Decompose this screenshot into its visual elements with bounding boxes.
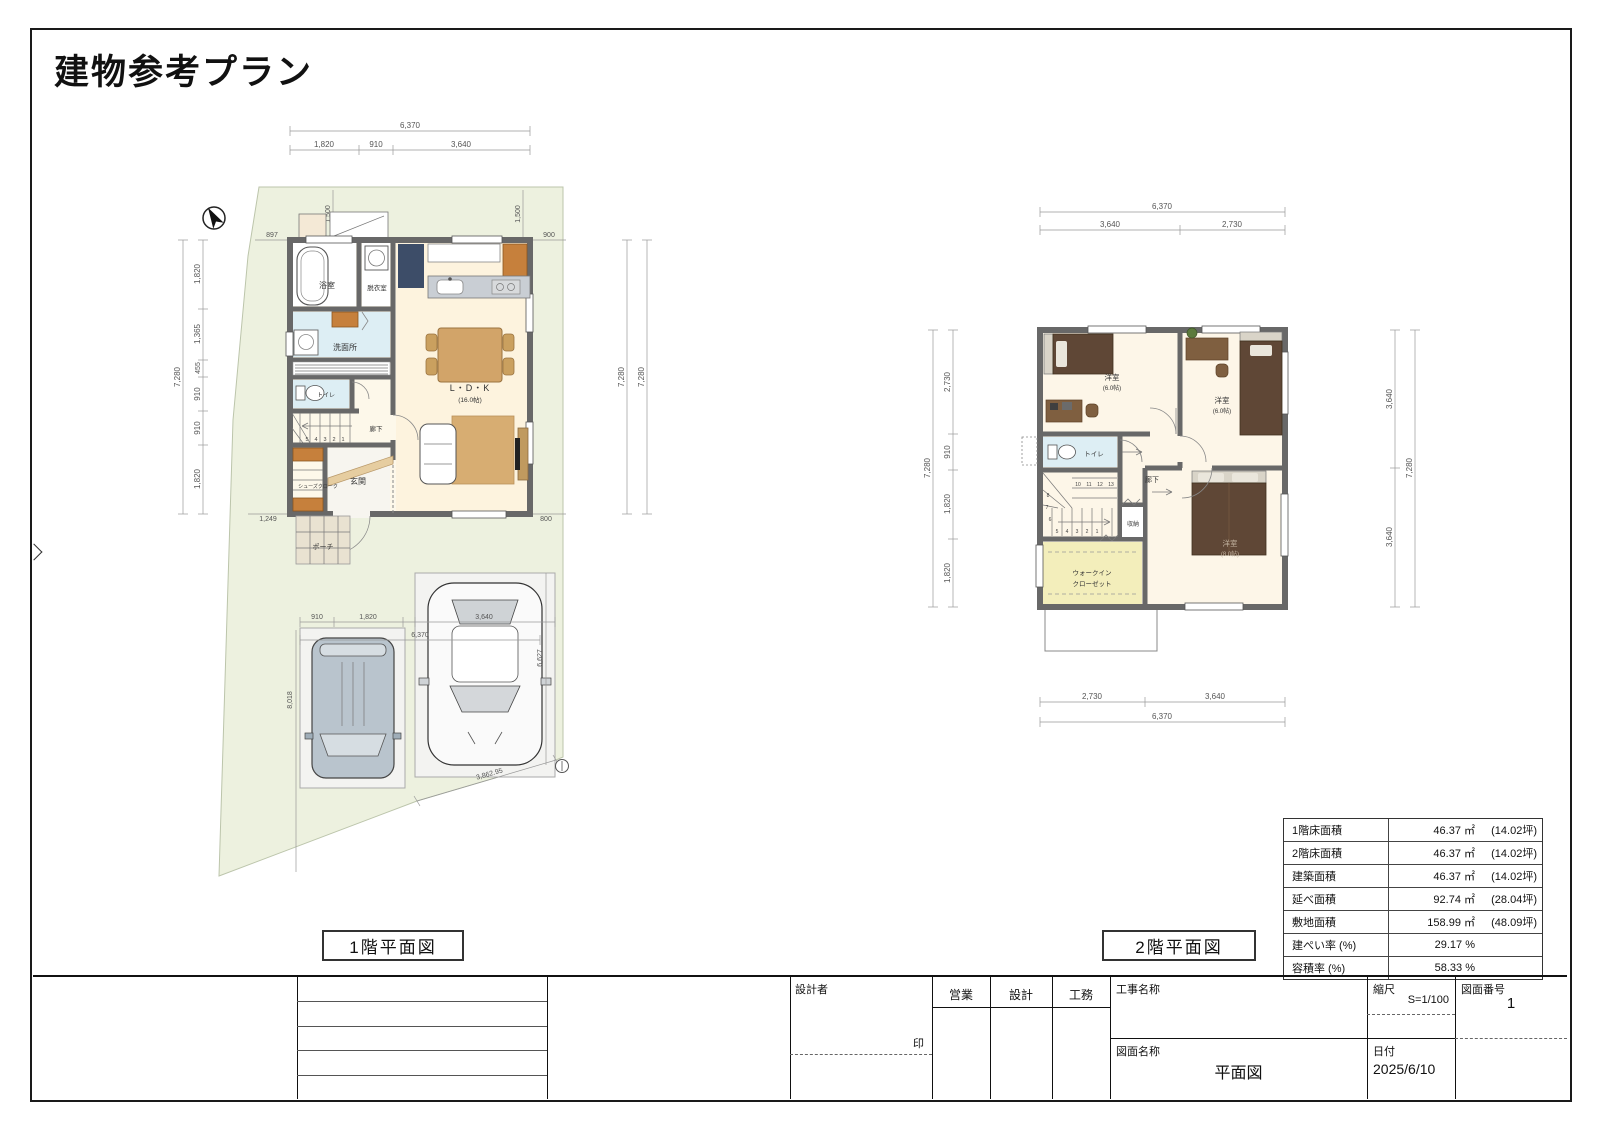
area-label: 敷地面積 — [1284, 911, 1389, 933]
bathtub — [297, 247, 328, 305]
divider — [297, 977, 298, 1099]
stair-number: 2 — [1086, 529, 1089, 535]
area-table: 1階床面積 46.37 ㎡ (14.02坪) 2階床面積 46.37 ㎡ (14… — [1283, 818, 1543, 980]
dim-label: 2,730 — [1222, 220, 1243, 229]
refrigerator — [398, 244, 424, 288]
plan1-dim-left: 7,280 1,820 1,365 455 910 910 1,820 — [173, 240, 208, 514]
area-value: 46.37 ㎡ — [1389, 845, 1475, 861]
dim-label: 800 — [540, 516, 552, 523]
dim-label: 1,820 — [943, 493, 952, 514]
stair-number: 10 — [1075, 482, 1081, 488]
washing-machine — [365, 246, 388, 270]
dim-label: 1,820 — [314, 140, 335, 149]
dim-label: 7,280 — [923, 457, 932, 478]
dim-label: 1,365 — [193, 323, 202, 344]
stair-number: 5 — [1056, 529, 1059, 535]
room-label: ポーチ — [313, 543, 334, 551]
room-label: シューズクローク — [298, 483, 338, 490]
dim-label: 8,018 — [287, 691, 294, 709]
room-label: 浴室 — [319, 280, 335, 290]
room-label: 廊下 — [1145, 475, 1159, 484]
plan2-dim-left: 7,280 2,730 910 1,820 1,820 — [923, 330, 958, 607]
divider — [297, 1001, 547, 1002]
dim-label: 2,730 — [943, 371, 952, 392]
divider — [1367, 1014, 1455, 1015]
plan2-dim-right: 3,640 3,640 7,280 — [1385, 330, 1420, 607]
area-tsubo: (14.02坪) — [1475, 868, 1542, 884]
drawing-name-value: 平面図 — [1110, 1059, 1367, 1083]
area-label: 建ぺい率 (%) — [1284, 934, 1389, 956]
divider — [297, 1026, 547, 1027]
plan1-dim-top: 6,370 1,820 910 3,640 — [290, 121, 530, 155]
plan1-caption: 1階平面図 — [322, 930, 464, 961]
stair-number: 3 — [323, 437, 326, 443]
divider — [932, 1007, 1110, 1008]
sales-label: 営業 — [932, 986, 990, 1003]
dim-label: 910 — [193, 387, 202, 401]
dim-label: 910 — [369, 140, 383, 149]
balcony — [1045, 607, 1157, 651]
stair-number: 7 — [1046, 505, 1049, 511]
room-label: トイレ — [317, 393, 335, 399]
dim-label: 897 — [266, 232, 278, 239]
dim-label: 6,370 — [1152, 202, 1173, 211]
stair-number: 8 — [1047, 493, 1050, 499]
room-label: 廊下 — [370, 424, 384, 433]
plan2-dim-top: 6,370 3,640 2,730 — [1040, 202, 1285, 235]
divider — [1110, 1038, 1455, 1039]
project-name-label: 工事名称 — [1116, 981, 1160, 997]
stair-number: 4 — [1066, 529, 1069, 535]
drawing-name-label: 図面名称 — [1116, 1043, 1160, 1059]
drawing-number-value: 1 — [1455, 995, 1567, 1012]
dim-label: 1,500 — [515, 205, 522, 223]
dim-label: 910 — [943, 445, 952, 459]
divider — [297, 1075, 547, 1076]
dim-label: 3,640 — [1100, 220, 1121, 229]
stair-number: 5 — [305, 437, 308, 443]
room-label: 洋室 — [1105, 372, 1121, 382]
dim-label: 3,640 — [1385, 388, 1394, 409]
dim-label: 1,249 — [259, 516, 277, 523]
dim-label: 6,627 — [537, 649, 544, 667]
designer-label: 設計者 — [795, 981, 828, 997]
dim-label: 6,370 — [400, 121, 421, 130]
plan1-dim-right: 7,280 7,280 — [617, 240, 652, 514]
area-value: 46.37 ㎡ — [1389, 868, 1475, 884]
room-label: L・D・K — [450, 383, 491, 393]
dim-label: 3,640 — [1385, 526, 1394, 547]
dim-label: 900 — [543, 232, 555, 239]
scale-value: S=1/100 — [1373, 994, 1449, 1006]
area-value: 92.74 ㎡ — [1389, 891, 1475, 907]
stair-number: 6 — [1049, 517, 1052, 523]
car — [419, 583, 551, 765]
table-row: 建築面積 46.37 ㎡ (14.02坪) — [1284, 864, 1542, 887]
north-arrow-icon — [203, 205, 225, 229]
dim-label: 3,640 — [475, 614, 493, 621]
area-value: 29.17 % — [1389, 939, 1475, 951]
title-block: 設計者 印 営業 設計 工務 工事名称 図面名称 平面図 縮尺 S=1/100 … — [33, 975, 1567, 1099]
dim-label: 7,280 — [1405, 457, 1414, 478]
stair-number: 11 — [1086, 482, 1091, 488]
living-set — [420, 416, 528, 484]
toilet-fixture-2f — [1048, 445, 1076, 459]
floor2-plan: 6,370 3,640 2,730 7,280 2,730 910 1,820 … — [900, 190, 1440, 735]
room-label: クローゼット — [1073, 579, 1112, 588]
stair-number: 13 — [1108, 482, 1114, 488]
minivan — [305, 638, 401, 778]
room-label: 洋室 — [1215, 395, 1231, 405]
date-value: 2025/6/10 — [1373, 1061, 1435, 1077]
floor2-building: 5 4 3 2 1 10 11 12 13 8 7 6 — [1022, 326, 1288, 651]
divider — [790, 1054, 932, 1055]
area-label: 2階床面積 — [1284, 842, 1389, 864]
area-value: 58.33 % — [1389, 962, 1475, 974]
stair-number: 1 — [341, 437, 344, 443]
area-tsubo: (28.04坪) — [1475, 891, 1542, 907]
area-tsubo: (14.02坪) — [1475, 845, 1542, 861]
stair-number: 3 — [1076, 529, 1079, 535]
room-label: ウォークイン — [1073, 569, 1112, 577]
divider — [297, 1050, 547, 1051]
area-tsubo: (14.02坪) — [1475, 822, 1542, 838]
dim-label: 1,820 — [359, 614, 377, 621]
stair-number: 12 — [1097, 482, 1103, 488]
plan2-dim-bottom: 2,730 3,640 6,370 — [1040, 692, 1285, 727]
room-size-label: (16.0帖) — [458, 395, 481, 404]
dim-label: 1,820 — [193, 263, 202, 284]
area-label: 建築面積 — [1284, 865, 1389, 887]
room-label: 収納 — [1127, 520, 1139, 528]
area-label: 1階床面積 — [1284, 819, 1389, 841]
divider — [547, 977, 548, 1099]
table-row: 1階床面積 46.37 ㎡ (14.02坪) — [1284, 819, 1542, 841]
room-size-label: (6.0帖) — [1103, 384, 1121, 392]
table-row: 2階床面積 46.37 ㎡ (14.02坪) — [1284, 841, 1542, 864]
dim-label: 7,280 — [637, 366, 646, 387]
area-tsubo: (48.09坪) — [1475, 914, 1542, 930]
dim-label: 1,820 — [193, 468, 202, 489]
dim-label: 6,370 — [1152, 712, 1173, 721]
divider — [790, 977, 791, 1099]
exterior-cabinet — [1022, 437, 1037, 465]
stair-number: 1 — [1096, 529, 1099, 535]
table-row: 敷地面積 158.99 ㎡ (48.09坪) — [1284, 910, 1542, 933]
stair-number: 4 — [314, 437, 317, 443]
area-value: 46.37 ㎡ — [1389, 822, 1475, 838]
divider — [1455, 1038, 1567, 1039]
room-size-label: (8.0帖) — [1221, 550, 1239, 558]
dim-label: 6,370 — [411, 632, 429, 639]
dim-label: 3,640 — [451, 140, 472, 149]
room-size-label: (6.0帖) — [1213, 407, 1231, 415]
dim-label: 7,280 — [173, 366, 182, 387]
dim-label: 3,640 — [1205, 692, 1226, 701]
dining-set — [426, 328, 514, 382]
room-label: 玄関 — [350, 476, 366, 486]
area-label: 延べ面積 — [1284, 888, 1389, 910]
dim-label: 1,820 — [943, 562, 952, 583]
table-row: 延べ面積 92.74 ㎡ (28.04坪) — [1284, 887, 1542, 910]
dim-label: 910 — [193, 421, 202, 435]
plan2-caption: 2階平面図 — [1102, 930, 1256, 961]
room-label: 洗面所 — [333, 342, 357, 352]
dim-label: 7,280 — [617, 366, 626, 387]
area-value: 158.99 ㎡ — [1389, 914, 1475, 930]
seal-label: 印 — [913, 1035, 924, 1051]
date-label: 日付 — [1373, 1043, 1395, 1059]
room-label: トイレ — [1084, 451, 1104, 458]
storage-strip — [293, 362, 390, 375]
table-row: 建ぺい率 (%) 29.17 % — [1284, 933, 1542, 956]
page-title: 建物参考プラン — [54, 44, 313, 95]
outdoor-units — [299, 212, 388, 239]
room-label: 脱衣室 — [367, 283, 387, 292]
design-label: 設計 — [990, 986, 1052, 1003]
dim-label: 455 — [195, 362, 202, 374]
room-label: 洋室 — [1223, 538, 1239, 548]
porch — [296, 516, 350, 564]
dim-label: 910 — [311, 614, 323, 621]
stair-number: 2 — [332, 437, 335, 443]
dim-label: 2,730 — [1082, 692, 1103, 701]
construction-label: 工務 — [1052, 986, 1110, 1003]
floor1-plan: 6,370 1,820 910 3,640 7,280 1,820 1,365 … — [160, 110, 680, 890]
